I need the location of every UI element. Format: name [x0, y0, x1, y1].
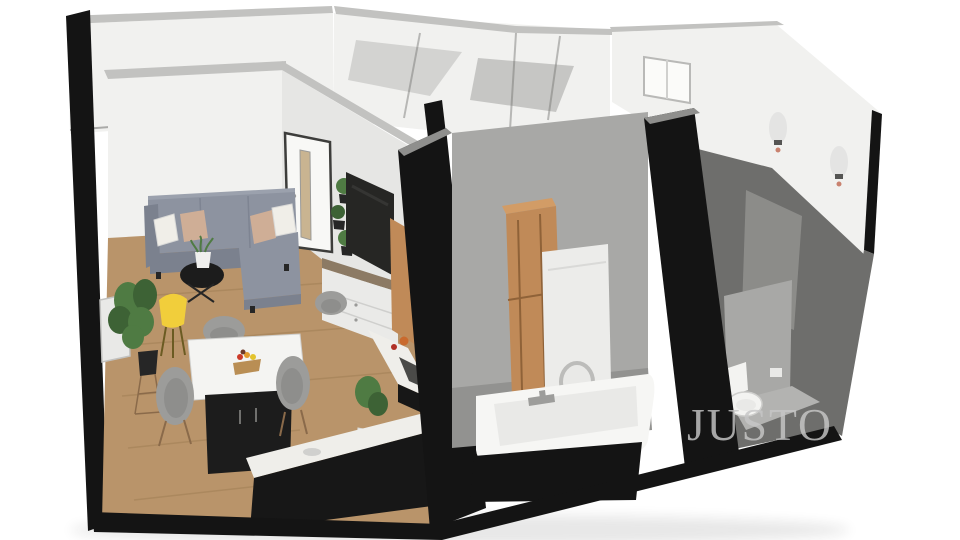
toilet-paper-holder — [770, 368, 782, 377]
sconce-fixture — [835, 174, 843, 179]
sofa-foot — [156, 272, 161, 279]
dining-chair-seat — [164, 378, 188, 418]
dining-chair-seat — [281, 368, 303, 404]
sconce-light-dot — [776, 148, 781, 153]
plant-pot — [333, 220, 345, 230]
sofa-pillow-white — [272, 204, 296, 236]
sideboard-plant — [368, 392, 388, 416]
door-glass — [300, 150, 311, 240]
sink — [303, 448, 321, 456]
coffee-table-plant-pot — [195, 252, 211, 268]
sconce-light-dot — [837, 182, 842, 187]
bathroom — [452, 112, 654, 502]
sofa-pillow-white — [154, 214, 178, 246]
sofa-pillow-tan — [250, 210, 276, 244]
plant-foliage — [122, 325, 144, 349]
plant-foliage — [133, 279, 157, 311]
sconce-glow — [769, 112, 787, 144]
sconce-glow — [830, 146, 848, 178]
spice-jar — [391, 344, 397, 350]
floorplan-image: JUSTO — [0, 0, 960, 540]
plant-pot-black — [138, 350, 158, 376]
faucet-stem — [539, 390, 546, 399]
sofa-chaise — [238, 232, 301, 300]
sofa-foot — [250, 306, 255, 313]
floor-lamp-shade — [159, 294, 187, 328]
sofa-foot — [284, 264, 289, 271]
fruit — [250, 354, 256, 360]
drawer-knob — [354, 303, 357, 306]
dining-chair-seat — [321, 299, 341, 313]
toilet-tank — [728, 362, 748, 396]
kettle — [400, 337, 409, 346]
fruit — [237, 354, 243, 360]
sofa-pillow-tan — [180, 210, 208, 242]
plant-stand-plant — [331, 205, 345, 219]
justo-watermark: JUSTO — [687, 399, 833, 450]
fruit — [241, 350, 246, 355]
apartment-3d-cutaway: JUSTO — [0, 0, 960, 540]
drawer-knob — [354, 318, 357, 321]
sconce-fixture — [774, 140, 782, 145]
